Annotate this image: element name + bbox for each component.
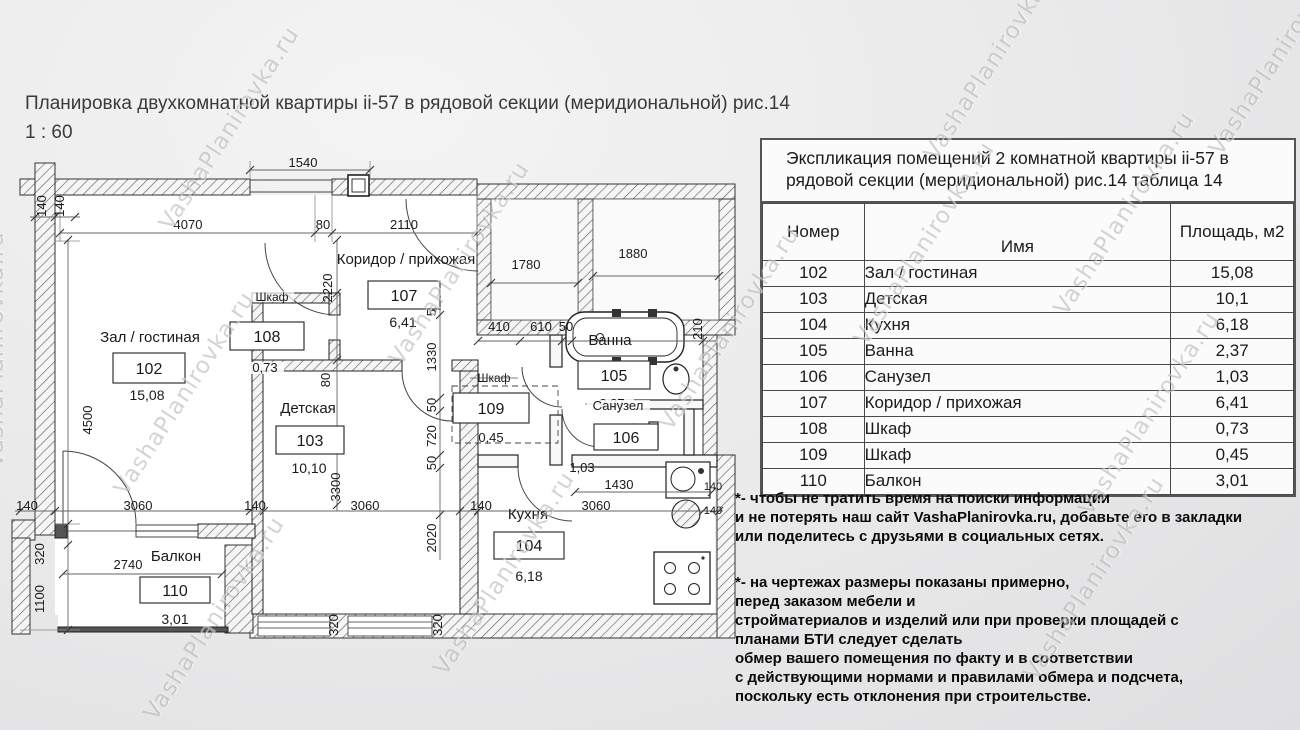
dim-label: 4500 [80, 406, 95, 435]
table-row: 103Детская10,1 [763, 286, 1294, 312]
dim-label: 1430 [605, 477, 634, 492]
room-corridor-id: 107 [391, 288, 418, 305]
room-area: 0,73 [1171, 416, 1294, 442]
room-balcony-area: 3,01 [161, 611, 188, 627]
room-closet2-area: 0,45 [478, 430, 503, 445]
room-name: Коридор / прихожая [864, 390, 1171, 416]
room-living-area: 15,08 [129, 387, 164, 403]
room-number: 106 [763, 364, 865, 390]
room-kids-area: 10,10 [291, 460, 326, 476]
room-kitchen-name: Кухня [508, 506, 548, 523]
page-title: Планировка двухкомнатной квартиры ii-57 … [25, 93, 790, 115]
dim-label: 210 [690, 318, 705, 340]
explication-table: Экспликация помещений 2 комнатной кварти… [760, 138, 1296, 497]
dim-label: 2740 [114, 557, 143, 572]
dim-label: 4070 [174, 217, 203, 232]
table-header-row: Номер Имя Площадь, м2 [763, 203, 1294, 260]
room-name: Кухня [864, 312, 1171, 338]
room-bath-name: Ванна [588, 332, 632, 349]
note-line: *- на чертежах размеры показаны примерно… [735, 573, 1295, 592]
room-name: Зал / гостиная [864, 260, 1171, 286]
dim-label: 80 [318, 373, 333, 387]
note-line: стройматериалов и изделий или при провер… [735, 611, 1295, 630]
room-number: 104 [763, 312, 865, 338]
dim-label: 410 [488, 319, 510, 334]
dim-label: 3300 [328, 473, 343, 502]
room-living-id: 102 [136, 361, 163, 378]
room-kids-id: 103 [297, 433, 324, 450]
scale-label: 1 : 60 [25, 122, 73, 144]
room-name: Шкаф [864, 416, 1171, 442]
room-number: 108 [763, 416, 865, 442]
room-corridor-area: 6,41 [389, 314, 416, 330]
note-line: перед заказом мебели и [735, 592, 1295, 611]
dim-label: 140 [34, 195, 49, 217]
dim-label: 2110 [390, 217, 418, 232]
floor-plan-drawing: 1540 4070 80 2110 1780 1880 410 610 50 1… [0, 150, 745, 662]
dim-label: 320 [326, 614, 341, 636]
room-corridor-name: Коридор / прихожая [337, 251, 476, 268]
room-kids-name: Детская [280, 400, 336, 417]
note-bookmark: *- чтобы не тратить время на поиски инфо… [735, 489, 1295, 546]
table-title: Экспликация помещений 2 комнатной кварти… [762, 140, 1294, 203]
dim-label: 50 [424, 398, 439, 412]
dim-label: 610 [530, 319, 552, 334]
stove [654, 552, 710, 604]
dim-label: 140 [470, 498, 492, 513]
table-row: 102Зал / гостиная15,08 [763, 260, 1294, 286]
room-kitchen-area: 6,18 [515, 568, 542, 584]
room-closet1-name: Шкаф [255, 290, 288, 304]
room-closet1-area: 0,73 [252, 360, 277, 375]
bath-sink [663, 364, 689, 394]
dim-label: 140 [704, 481, 722, 493]
room-number: 105 [763, 338, 865, 364]
table-row: 109Шкаф0,45 [763, 442, 1294, 468]
dim-label: 50 [559, 319, 573, 334]
room-closet2-id: 109 [478, 401, 505, 418]
table-row: 108Шкаф0,73 [763, 416, 1294, 442]
room-number: 109 [763, 442, 865, 468]
table-row: 105Ванна2,37 [763, 338, 1294, 364]
dim-label: 720 [424, 425, 439, 447]
dim-label: 1540 [289, 155, 318, 170]
table-row: 106Санузел1,03 [763, 364, 1294, 390]
room-name: Шкаф [864, 442, 1171, 468]
watermark: VashaPlanirovka.ru [1204, 0, 1300, 160]
note-line: с действующими нормами и правилами обмер… [735, 668, 1295, 687]
room-area: 6,18 [1171, 312, 1294, 338]
dim-label: 140 [704, 505, 722, 517]
dim-label: 2020 [424, 524, 439, 553]
column-header-name: Имя [864, 203, 1171, 260]
room-balcony-name: Балкон [151, 548, 201, 565]
dim-label: 320 [430, 614, 445, 636]
room-number: 102 [763, 260, 865, 286]
room-living-name: Зал / гостиная [100, 329, 200, 346]
dim-label: 1880 [619, 246, 648, 261]
dim-label: 2220 [320, 274, 335, 303]
room-closet1-id: 108 [254, 329, 281, 346]
dim-label: 320 [32, 543, 47, 565]
note-line: обмер вашего помещения по факту и в соот… [735, 649, 1295, 668]
room-area: 15,08 [1171, 260, 1294, 286]
dim-label: 1330 [424, 343, 439, 372]
table-row: 107Коридор / прихожая6,41 [763, 390, 1294, 416]
note-disclaimer: *- на чертежах размеры показаны примерно… [735, 573, 1295, 706]
room-area: 10,1 [1171, 286, 1294, 312]
room-area: 6,41 [1171, 390, 1294, 416]
room-wc-area: 1,03 [569, 460, 594, 475]
room-wc-name: Санузел [593, 398, 644, 413]
dim-label: 3060 [124, 498, 153, 513]
room-area: 0,45 [1171, 442, 1294, 468]
table-row: 104Кухня6,18 [763, 312, 1294, 338]
room-balcony-id: 110 [162, 583, 188, 600]
dim-label: 50 [424, 456, 439, 470]
room-area: 1,03 [1171, 364, 1294, 390]
dim-label: 3060 [582, 498, 611, 513]
column-header-number: Номер [763, 203, 865, 260]
room-number: 103 [763, 286, 865, 312]
note-line: или поделитесь с друзьями в социальных с… [735, 527, 1295, 546]
dim-label: 3060 [351, 498, 380, 513]
dim-label: 1100 [32, 585, 47, 613]
dim-label: 140 [244, 498, 266, 513]
note-line: и не потерять наш сайт VashaPlanirovka.r… [735, 508, 1295, 527]
note-line: *- чтобы не тратить время на поиски инфо… [735, 489, 1295, 508]
note-line: планами БТИ следует сделать [735, 630, 1295, 649]
dim-label: 1780 [512, 257, 541, 272]
dim-label: 140 [52, 195, 67, 217]
column-header-area: Площадь, м2 [1171, 203, 1294, 260]
room-name: Детская [864, 286, 1171, 312]
room-kitchen-id: 104 [516, 538, 543, 555]
room-number: 107 [763, 390, 865, 416]
dim-label: 80 [316, 217, 330, 232]
room-name: Ванна [864, 338, 1171, 364]
room-bath-id: 105 [601, 368, 628, 385]
dim-label: 140 [16, 498, 38, 513]
note-line: поскольку есть отклонения при строительс… [735, 687, 1295, 706]
room-wc-id: 106 [613, 430, 640, 447]
floor-plan-page: Планировка двухкомнатной квартиры ii-57 … [0, 0, 1300, 730]
room-name: Санузел [864, 364, 1171, 390]
room-area: 2,37 [1171, 338, 1294, 364]
